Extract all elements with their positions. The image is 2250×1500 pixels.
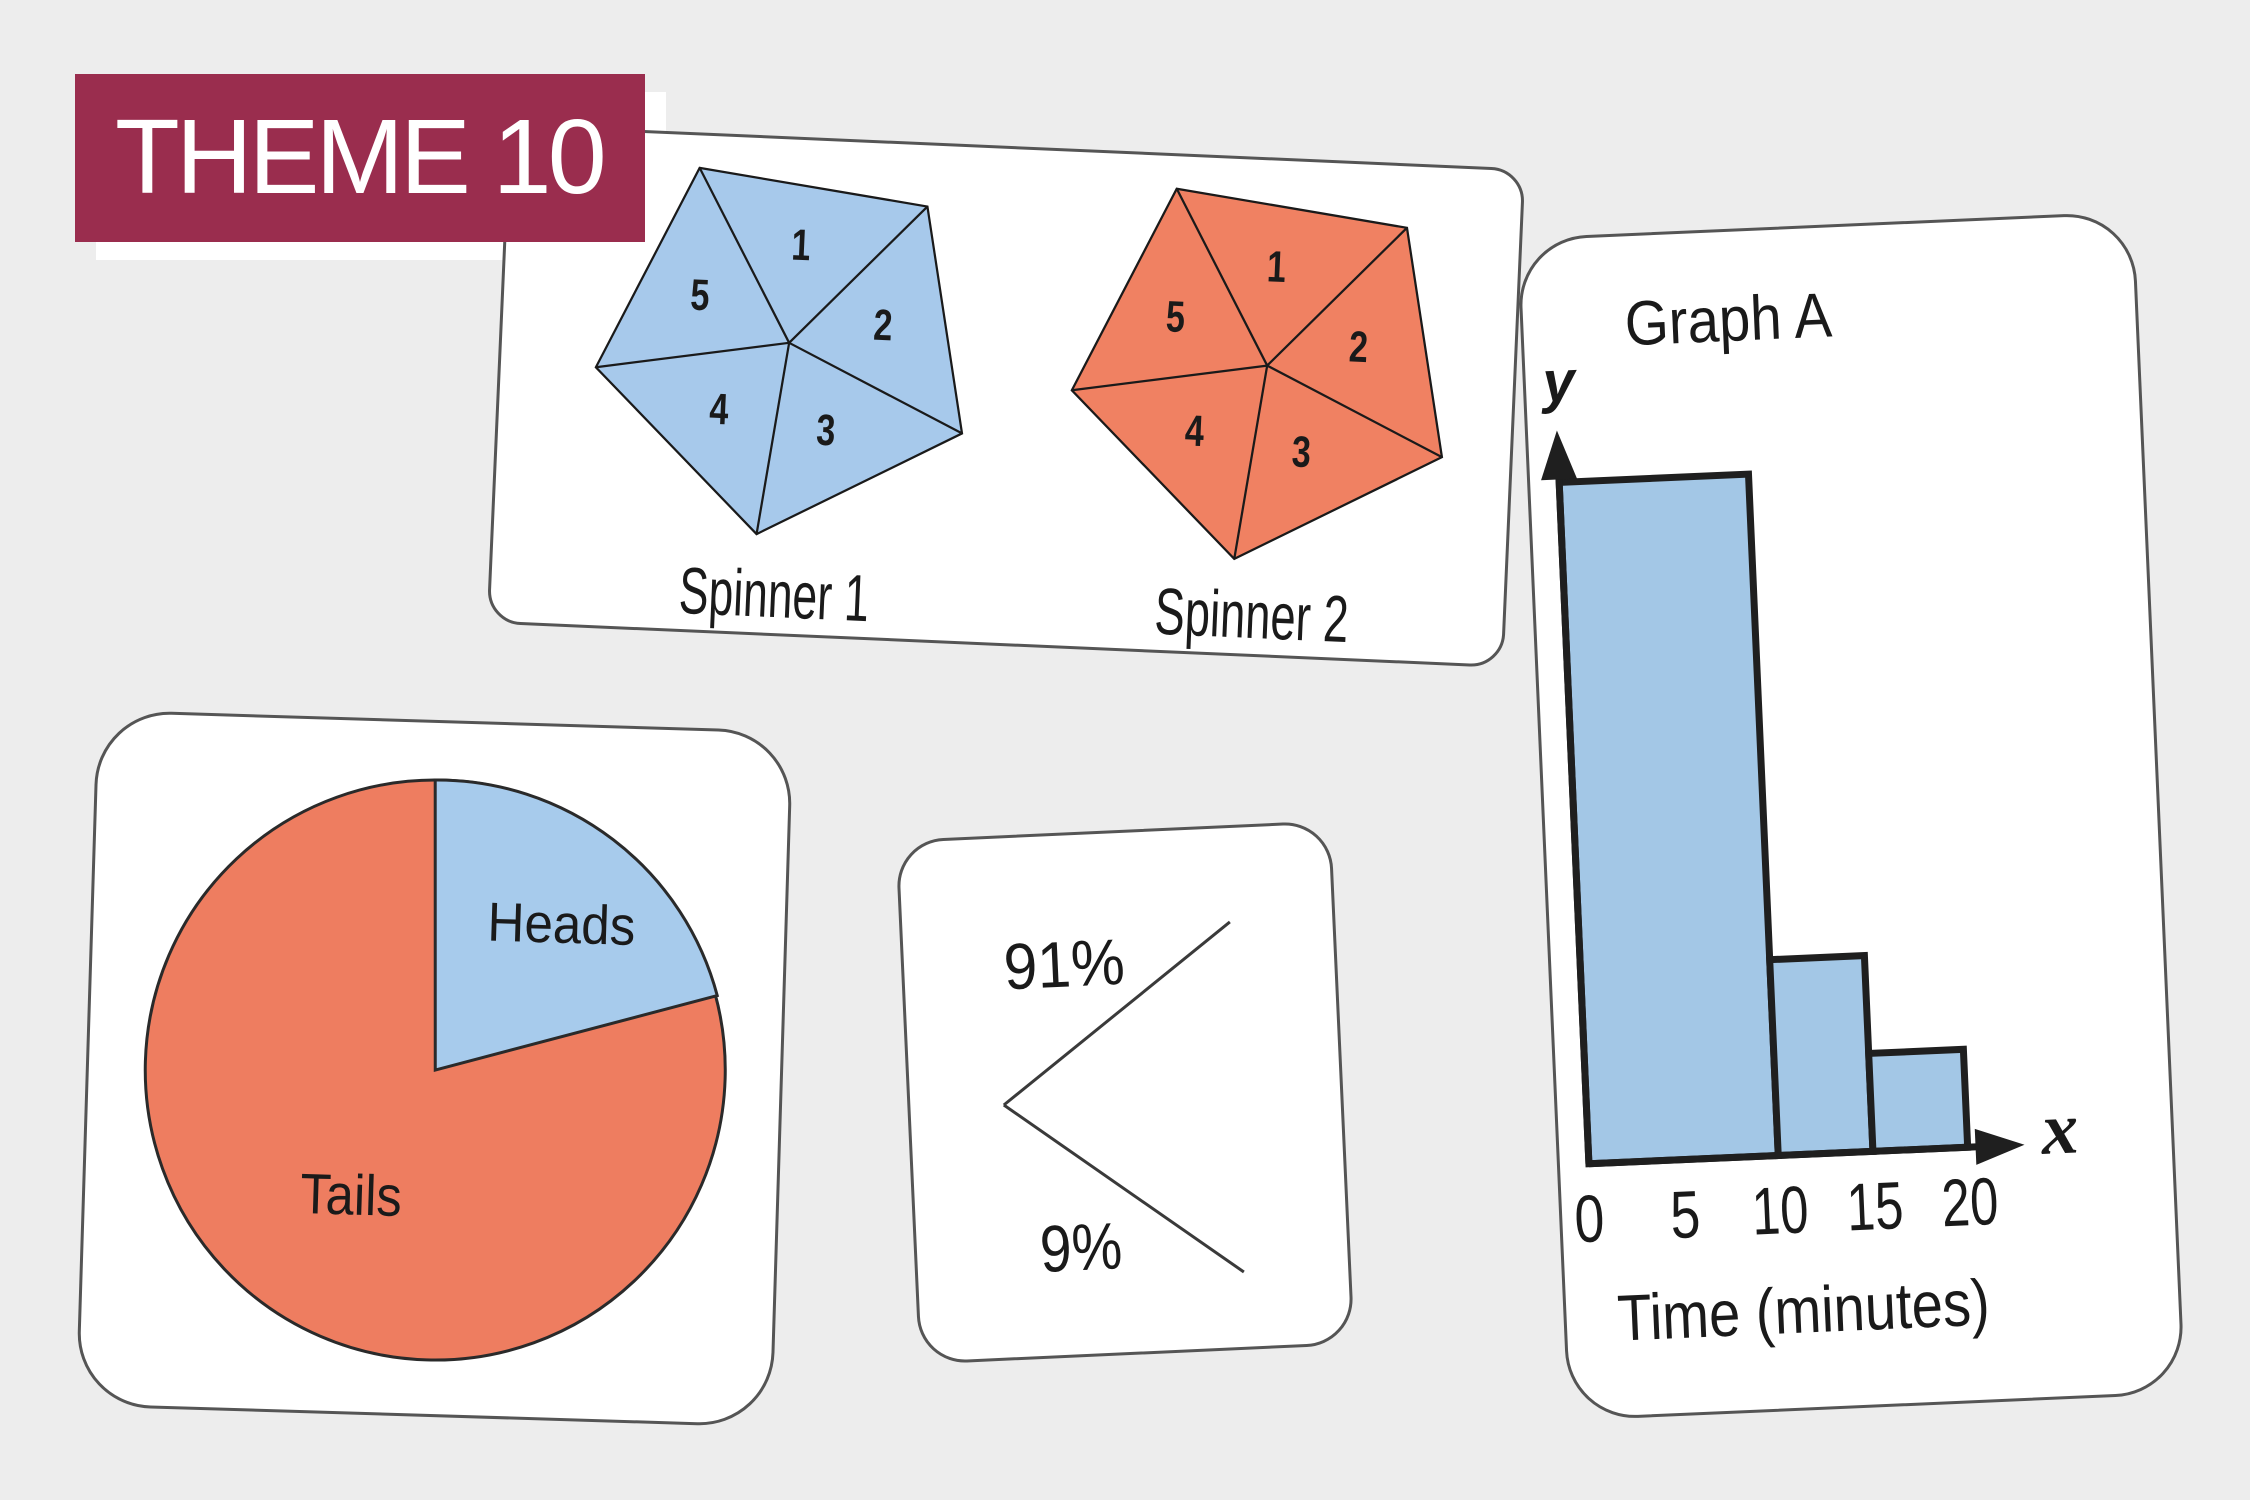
- svg-text:2: 2: [872, 301, 893, 351]
- svg-text:10: 10: [1750, 1171, 1810, 1249]
- svg-text:5: 5: [1669, 1176, 1702, 1252]
- svg-text:15: 15: [1845, 1167, 1905, 1245]
- svg-text:Spinner 1: Spinner 1: [678, 553, 871, 635]
- svg-text:3: 3: [815, 406, 836, 456]
- svg-text:Tails: Tails: [299, 1162, 402, 1228]
- svg-text:2: 2: [1348, 322, 1369, 372]
- svg-text:Heads: Heads: [487, 892, 637, 958]
- svg-text:3: 3: [1291, 427, 1312, 477]
- svg-text:4: 4: [1184, 406, 1205, 456]
- svg-text:Spinner 2: Spinner 2: [1153, 574, 1350, 656]
- svg-text:y: y: [1538, 349, 1579, 416]
- svg-text:1: 1: [1266, 242, 1287, 292]
- svg-text:0: 0: [1573, 1180, 1606, 1256]
- svg-text:x: x: [2039, 1087, 2081, 1171]
- svg-text:5: 5: [1165, 292, 1186, 342]
- svg-text:Graph A: Graph A: [1623, 280, 1833, 360]
- svg-text:91%: 91%: [1002, 926, 1126, 1004]
- svg-text:1: 1: [790, 220, 811, 270]
- svg-text:20: 20: [1940, 1163, 2000, 1241]
- svg-text:4: 4: [708, 384, 729, 434]
- svg-text:Time (minutes): Time (minutes): [1616, 1266, 1991, 1355]
- svg-text:9%: 9%: [1038, 1209, 1123, 1287]
- svg-text:5: 5: [689, 270, 710, 320]
